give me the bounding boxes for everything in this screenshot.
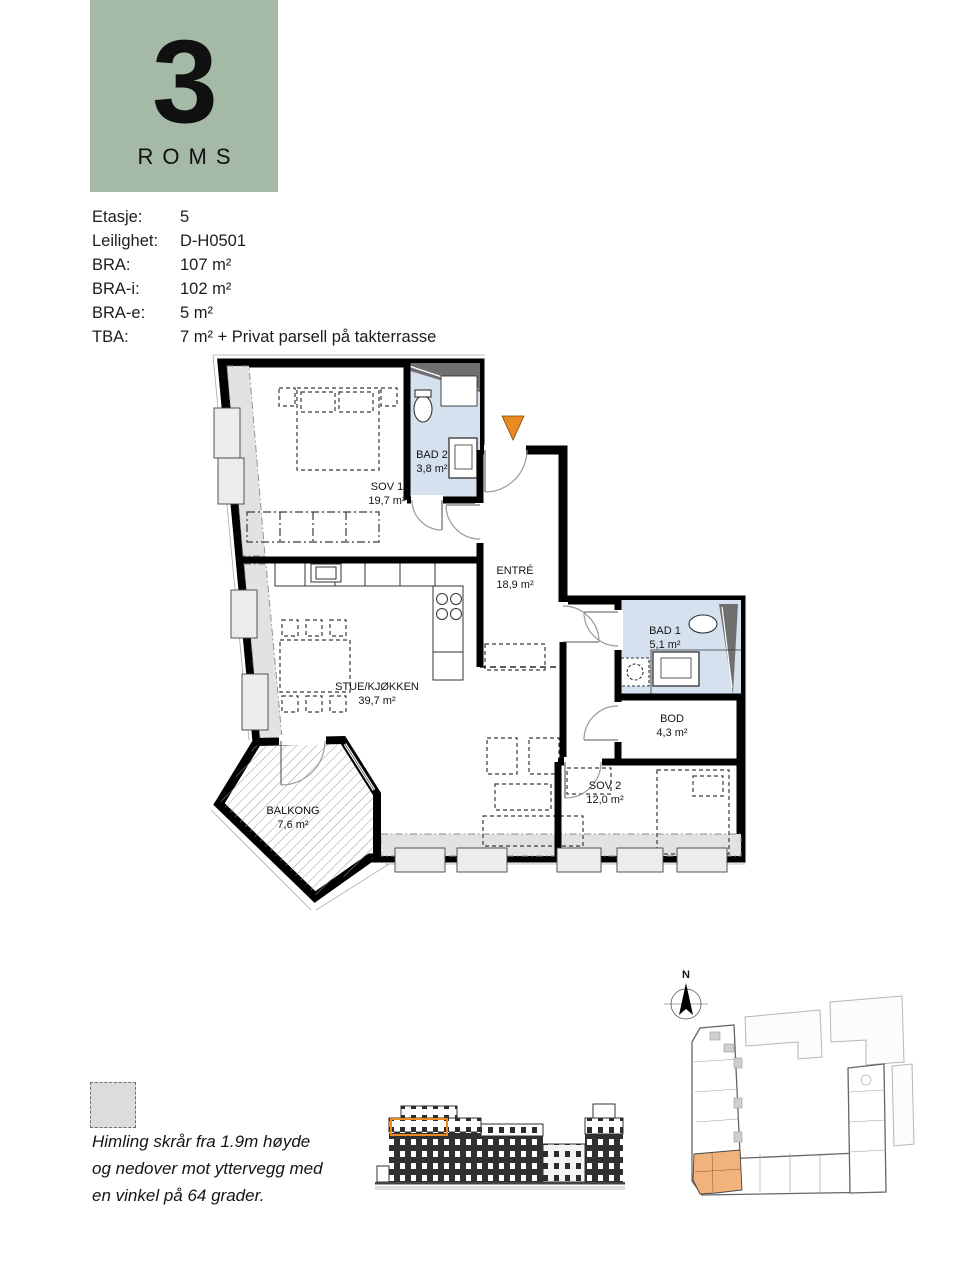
room-label: BOD	[660, 713, 684, 725]
room-count-label: ROMS	[138, 144, 240, 170]
room-label: STUE/KJØKKEN	[335, 681, 419, 693]
info-label: BRA-e:	[92, 301, 180, 325]
legend-line: Himling skrår fra 1.9m høyde	[92, 1128, 382, 1155]
info-value: 107 m²	[180, 253, 231, 277]
room-label: BALKONG	[266, 805, 319, 817]
info-row-tba: TBA: 7 m² + Privat parsell på takterrass…	[92, 325, 436, 349]
room-area: 19,7 m²	[368, 495, 406, 507]
legend-line: en vinkel på 64 grader.	[92, 1182, 382, 1209]
room-area: 39,7 m²	[358, 695, 396, 707]
room-area: 5,1 m²	[649, 639, 681, 651]
info-row-bra-i: BRA-i: 102 m²	[92, 277, 436, 301]
svg-text:N: N	[682, 969, 690, 981]
site-footprint	[692, 996, 914, 1195]
room-count-badge: 3 ROMS	[90, 0, 278, 192]
info-value: D-H0501	[180, 229, 246, 253]
legend-line: og nedover mot yttervegg med	[92, 1155, 382, 1182]
room-area: 18,9 m²	[496, 579, 534, 591]
apartment-info-list: Etasje: 5 Leilighet: D-H0501 BRA: 107 m²…	[92, 205, 436, 349]
info-row-bra: BRA: 107 m²	[92, 253, 436, 277]
room-label: SOV 1	[371, 481, 403, 493]
info-label: Leilighet:	[92, 229, 180, 253]
info-label: TBA:	[92, 325, 180, 349]
room-area: 12,0 m²	[586, 794, 624, 806]
floor-plan-page: 3 ROMS Etasje: 5 Leilighet: D-H0501 BRA:…	[0, 0, 960, 1280]
room-area: 7,6 m²	[277, 819, 309, 831]
room-label: SOV 2	[589, 780, 621, 792]
info-value: 102 m²	[180, 277, 231, 301]
elevation-drawing	[375, 1104, 625, 1190]
room-area: 3,8 m²	[416, 463, 448, 475]
info-label: Etasje:	[92, 205, 180, 229]
info-row-etasje: Etasje: 5	[92, 205, 436, 229]
north-arrow-icon: N	[664, 969, 708, 1019]
apartment-highlight	[693, 1150, 742, 1194]
sloped-ceiling-legend-swatch	[90, 1082, 136, 1128]
room-count-number: 3	[152, 22, 216, 142]
room-area: 4,3 m²	[656, 727, 688, 739]
building-elevation	[375, 1088, 625, 1200]
floor-plan: SOV 1 19,7 m² BAD 2 3,8 m² ENTRÉ 18,9 m²…	[185, 352, 765, 910]
info-row-bra-e: BRA-e: 5 m²	[92, 301, 436, 325]
info-label: BRA:	[92, 253, 180, 277]
info-label: BRA-i:	[92, 277, 180, 301]
room-label: BAD 2	[416, 449, 448, 461]
info-value: 5 m²	[180, 301, 213, 325]
site-plan: N	[650, 962, 960, 1217]
entrance-marker-icon	[502, 416, 524, 440]
room-label: BAD 1	[649, 625, 681, 637]
info-value: 7 m² + Privat parsell på takterrasse	[180, 325, 436, 349]
sloped-ceiling-legend-text: Himling skrår fra 1.9m høyde og nedover …	[92, 1128, 382, 1209]
info-value: 5	[180, 205, 189, 229]
room-label: ENTRÉ	[496, 564, 533, 577]
info-row-leilighet: Leilighet: D-H0501	[92, 229, 436, 253]
